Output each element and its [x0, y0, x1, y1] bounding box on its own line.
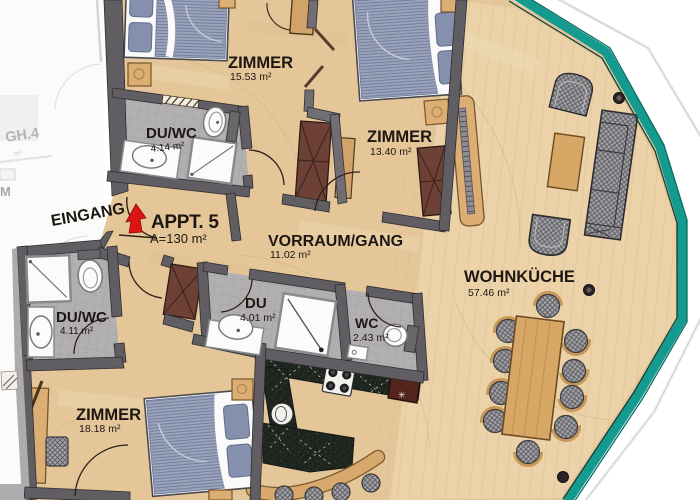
- svg-text:ZIMMER: ZIMMER: [367, 128, 432, 146]
- svg-text:WC: WC: [355, 315, 378, 331]
- svg-text:VORRAUM/GANG: VORRAUM/GANG: [268, 233, 403, 250]
- svg-text:WOHNKÜCHE: WOHNKÜCHE: [464, 267, 575, 286]
- svg-text:DU/WC: DU/WC: [146, 125, 197, 142]
- svg-text:4.11 m²: 4.11 m²: [60, 326, 94, 337]
- svg-text:13.40 m²: 13.40 m²: [370, 146, 412, 158]
- svg-text:15.53 m²: 15.53 m²: [230, 71, 272, 83]
- svg-text:ZIMMER: ZIMMER: [76, 406, 141, 424]
- svg-text:ZIMMER: ZIMMER: [228, 54, 293, 72]
- svg-text:4.01 m²: 4.01 m²: [240, 312, 276, 324]
- svg-text:18.18 m²: 18.18 m²: [79, 423, 121, 435]
- svg-text:11.02 m²: 11.02 m²: [270, 249, 311, 261]
- svg-text:DU/WC: DU/WC: [56, 309, 107, 326]
- svg-text:APPT. 5: APPT. 5: [151, 212, 219, 233]
- svg-text:M: M: [0, 184, 11, 199]
- svg-text:A=130 m²: A=130 m²: [150, 231, 207, 246]
- svg-text:✳: ✳: [398, 390, 406, 400]
- svg-text:DU: DU: [245, 295, 267, 312]
- svg-text:2.43 m²: 2.43 m²: [353, 332, 389, 344]
- svg-text:57.46 m²: 57.46 m²: [468, 287, 510, 299]
